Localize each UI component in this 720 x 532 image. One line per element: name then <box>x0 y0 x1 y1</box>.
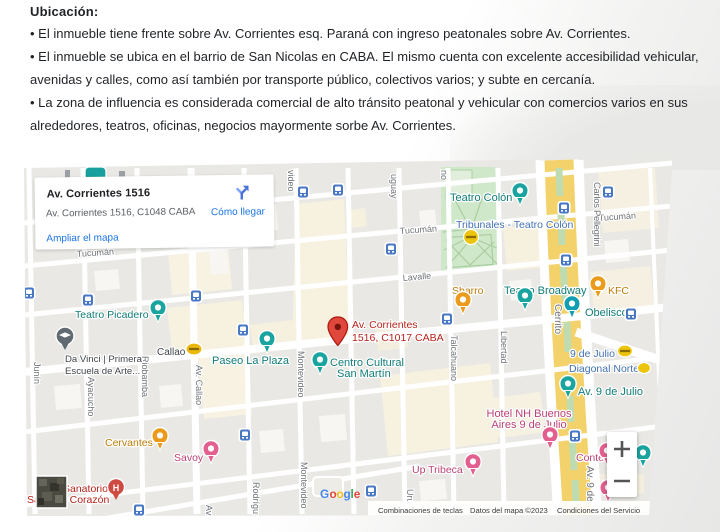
svg-text:Av. 9 de: Av. 9 de <box>584 466 595 502</box>
svg-text:1516, C1017 CABA: 1516, C1017 CABA <box>352 332 444 344</box>
svg-text:Combinaciones de teclas: Combinaciones de teclas <box>378 506 463 515</box>
svg-text:Up Tribeca: Up Tribeca <box>412 464 463 476</box>
svg-text:Diagonal Norte: Diagonal Norte <box>569 363 639 375</box>
svg-text:Condiciones del Servicio: Condiciones del Servicio <box>557 506 640 515</box>
svg-text:Rodrígu: Rodrígu <box>251 482 261 514</box>
svg-text:Da Vinci | Primera: Da Vinci | Primera <box>65 354 143 365</box>
svg-text:no: no <box>439 170 449 180</box>
svg-text:Datos del mapa ©2023: Datos del mapa ©2023 <box>470 506 548 515</box>
svg-text:Montevideo: Montevideo <box>299 462 309 509</box>
svg-text:Cerrito: Cerrito <box>552 304 563 334</box>
svg-text:H: H <box>113 483 120 493</box>
svg-text:Obelisco: Obelisco <box>585 307 628 319</box>
svg-text:Paseo La Plaza: Paseo La Plaza <box>212 355 290 367</box>
svg-text:Montevideo: Montevideo <box>296 351 306 398</box>
svg-text:uguay: uguay <box>389 174 399 199</box>
svg-text:San Martín: San Martín <box>337 368 391 380</box>
svg-text:Av. Callao: Av. Callao <box>194 365 204 405</box>
svg-text:Teatro Picadero: Teatro Picadero <box>75 309 149 321</box>
svg-text:Escuela de Arte...: Escuela de Arte... <box>65 366 140 377</box>
svg-text:Teatro Colón: Teatro Colón <box>450 192 512 204</box>
svg-text:Libertad: Libertad <box>499 331 509 364</box>
svg-text:Carlos Pellegrini: Carlos Pellegrini <box>591 182 602 246</box>
svg-text:G: G <box>320 487 329 501</box>
svg-text:video: video <box>286 170 296 192</box>
svg-text:Tribunales - Teatro Colón: Tribunales - Teatro Colón <box>456 219 573 231</box>
svg-text:Av. C: Av. C <box>204 505 214 527</box>
svg-text:Av. Corrientes: Av. Corrientes <box>352 319 418 331</box>
svg-text:Talcahuano: Talcahuano <box>449 335 459 381</box>
svg-text:Savoy: Savoy <box>174 452 204 464</box>
svg-text:e: e <box>354 487 361 501</box>
svg-text:9 de Julio: 9 de Julio <box>570 348 615 360</box>
svg-text:Av. 9 de Julio: Av. 9 de Julio <box>578 386 643 398</box>
svg-text:Cervantes: Cervantes <box>105 437 153 449</box>
svg-text:Callao: Callao <box>157 347 186 358</box>
svg-text:Junín: Junín <box>32 362 42 384</box>
svg-text:Ayacucho: Ayacucho <box>86 377 96 416</box>
svg-text:KFC: KFC <box>608 285 629 297</box>
